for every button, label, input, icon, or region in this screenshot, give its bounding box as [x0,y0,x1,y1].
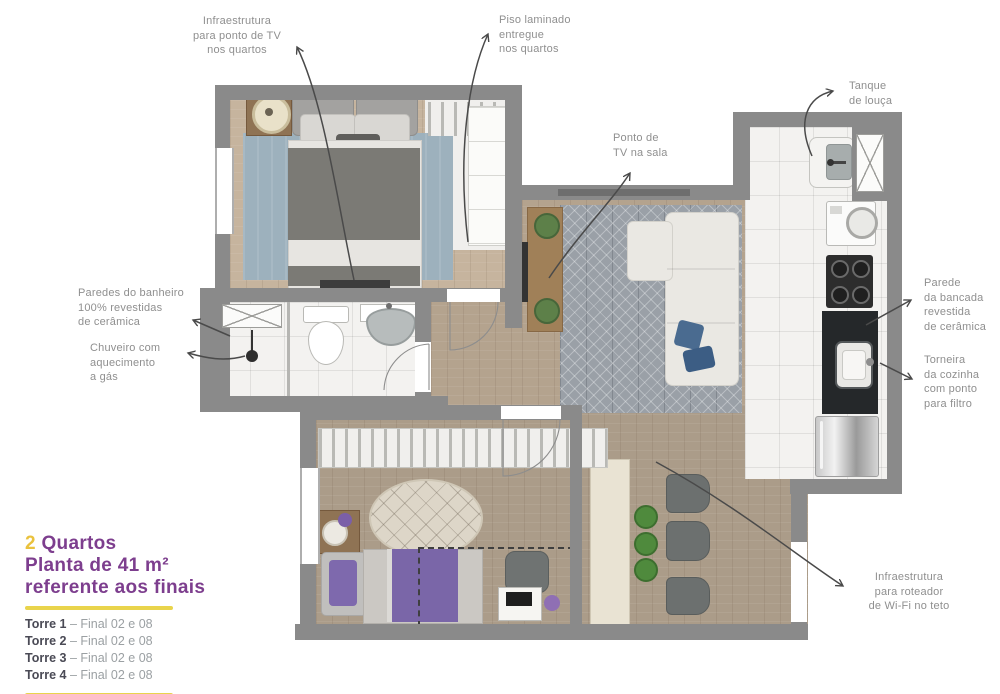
sofa-chaise [627,221,673,281]
wall [887,112,902,494]
dining-table [590,459,630,625]
side-table-flowers [338,513,352,527]
tower-detail: – Final 02 e 08 [70,634,153,648]
bathroom-faucet [386,303,392,309]
bedroom2-window [300,468,320,564]
optional-furniture-outline [418,547,574,627]
tower-detail: – Final 02 e 08 [70,651,153,665]
dining-chair-2 [666,521,710,561]
label-chuveiro: Chuveiro com aquecimento a gás [90,341,200,385]
plant-top [534,213,560,239]
kitchen-faucet [866,358,874,366]
single-bed-fold [387,549,392,622]
stove-burner-3 [831,286,849,304]
floor-plan-page: Infraestrutura para ponto de TV nos quar… [0,0,1000,694]
label-ponto-tv: Ponto de TV na sala [613,131,703,160]
bedroom1-tv [320,280,390,288]
label-roteador: Infraestrutura para roteador de Wi-Fi no… [849,570,969,614]
tower-name: Torre 2 [25,634,66,648]
dining-plate-3 [634,558,658,582]
label-piso-laminado: Piso laminado entregue nos quartos [499,13,609,57]
legend-title-line1: 2 Quartos [25,533,225,555]
tower-name: Torre 4 [25,668,66,682]
legend: 2 Quartos Planta de 41 m² referente aos … [25,533,225,694]
wall [570,418,582,626]
wall [215,85,230,412]
label-paredes-banheiro: Paredes do banheiro 100% revestidas de c… [78,286,200,330]
shower-arm [251,330,253,352]
label-torneira: Torneira da cozinha com ponto para filtr… [924,353,1000,411]
stove-burner-2 [852,260,870,278]
single-bed-pillow-inner [329,560,357,606]
entrance-door-opening [791,540,807,624]
shower-head [246,350,258,362]
living-tv [522,242,528,302]
legend-tower-3: Torre 3 – Final 02 e 08 [25,650,225,667]
wall [200,288,216,412]
dining-plate-2 [634,532,658,556]
bathroom-door-opening [415,342,431,392]
plant-bottom [534,298,560,324]
dining-chair-1 [666,474,710,513]
legend-tower-2: Torre 2 – Final 02 e 08 [25,633,225,650]
tower-detail: – Final 02 e 08 [70,668,153,682]
closet-shelf-column [468,106,508,246]
wall [745,112,902,127]
washing-machine-panel [830,206,842,214]
tv-stand-screen [506,592,532,606]
bedroom1-door-opening [447,289,500,302]
living-window [558,189,690,196]
tower-detail: – Final 02 e 08 [70,617,153,631]
wall [215,85,520,100]
legend-unit-count: 2 [25,533,36,554]
dining-plate-1 [634,505,658,529]
bedroom2-door-opening [501,406,561,419]
stove-burner-1 [831,260,849,278]
label-tanque: Tanque de louça [849,79,939,108]
legend-tower-4: Torre 4 – Final 02 e 08 [25,667,225,684]
legend-title-line3: referente aos finais [25,577,225,599]
stove-burner-4 [852,286,870,304]
legend-unit-label: Quartos [41,533,116,554]
legend-tower-1: Torre 1 – Final 02 e 08 [25,616,225,633]
bedroom2-round-rug [369,479,483,557]
purple-plant [544,595,560,611]
sofa-seam-1 [667,268,735,270]
bathroom-shaft [222,304,282,328]
service-shaft [856,134,884,192]
bedroom2-wardrobe [318,428,608,468]
washing-machine-door [846,207,878,239]
shower-glass-divider [287,302,290,396]
double-bed-blanket [288,148,420,240]
wall [505,85,522,328]
legend-rule-top [25,606,173,610]
tower-name: Torre 3 [25,651,66,665]
kitchen-sink-bowl [842,350,866,380]
label-bancada: Parede da bancada revestida de cerâmica [924,276,1000,334]
dining-chair-3 [666,577,710,615]
legend-title-line2: Planta de 41 m² [25,555,225,577]
label-infra-tv: Infraestrutura para ponto de TV nos quar… [178,14,296,58]
fridge-handle [820,421,823,469]
laundry-faucet-dot [827,159,834,166]
fridge [815,416,879,477]
wall [295,624,808,640]
table-lamp-center [265,108,273,116]
wall [200,396,448,412]
tower-name: Torre 1 [25,617,66,631]
bedroom1-window [215,148,234,234]
